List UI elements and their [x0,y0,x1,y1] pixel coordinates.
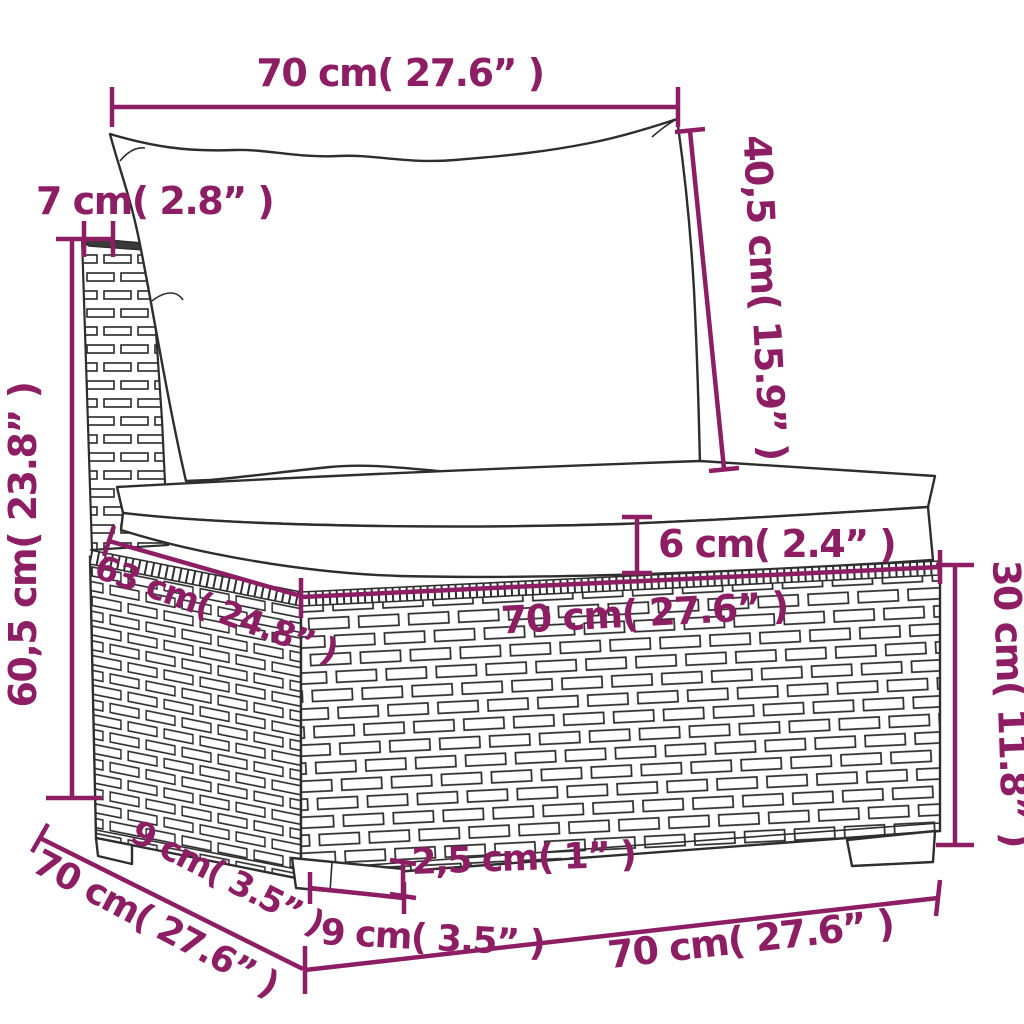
back-cushion [110,119,700,481]
back-cushion-outline [110,119,700,481]
dim-top-width-label: 70 cm( 27.6” ) [256,51,543,95]
dim-foot-height: 2,5 cm( 1” ) [390,834,636,898]
dim-foot-height-label: 2,5 cm( 1” ) [411,834,636,883]
dim-back-thickness-label: 7 cm( 2.8” ) [36,179,273,223]
dim-cushion-thickness-label: 6 cm( 2.4” ) [658,522,895,566]
dim-overall-height-label: 60,5 cm( 23.8” ) [1,382,45,707]
dimension-diagram: 70 cm( 27.6” ) 40,5 cm( 15.9” ) 7 cm( 2.… [0,0,1024,1024]
sofa-dimension-drawing: 70 cm( 27.6” ) 40,5 cm( 15.9” ) 7 cm( 2.… [0,0,1024,1024]
dim-base-height-label: 30 cm( 11.8” ) [984,559,1024,848]
furniture-drawing [82,119,940,898]
dim-back-cushion-height-label: 40,5 cm( 15.9” ) [735,134,796,461]
dim-base-height: 30 cm( 11.8” ) [936,559,1024,848]
dim-top-width: 70 cm( 27.6” ) [112,51,678,127]
dim-bottom-width-label: 70 cm( 27.6” ) [605,901,895,977]
dim-cushion-thickness: 6 cm( 2.4” ) [622,517,895,573]
